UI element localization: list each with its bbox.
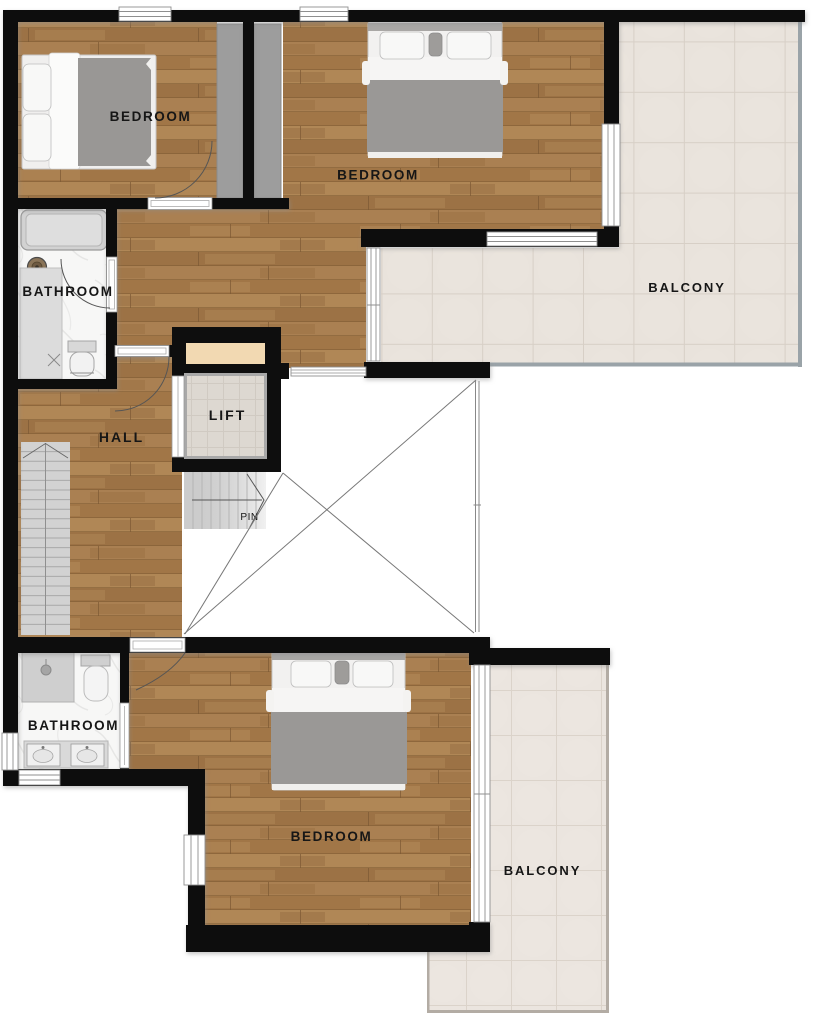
svg-text:HALL: HALL (99, 429, 144, 445)
svg-text:BEDROOM: BEDROOM (110, 109, 192, 124)
svg-text:LIFT: LIFT (209, 407, 247, 423)
svg-text:BEDROOM: BEDROOM (291, 829, 373, 844)
svg-text:BATHROOM: BATHROOM (28, 718, 119, 733)
svg-text:BEDROOM: BEDROOM (337, 168, 419, 183)
svg-text:BATHROOM: BATHROOM (22, 284, 113, 299)
svg-text:BALCONY: BALCONY (504, 863, 582, 878)
svg-text:BALCONY: BALCONY (648, 280, 726, 295)
